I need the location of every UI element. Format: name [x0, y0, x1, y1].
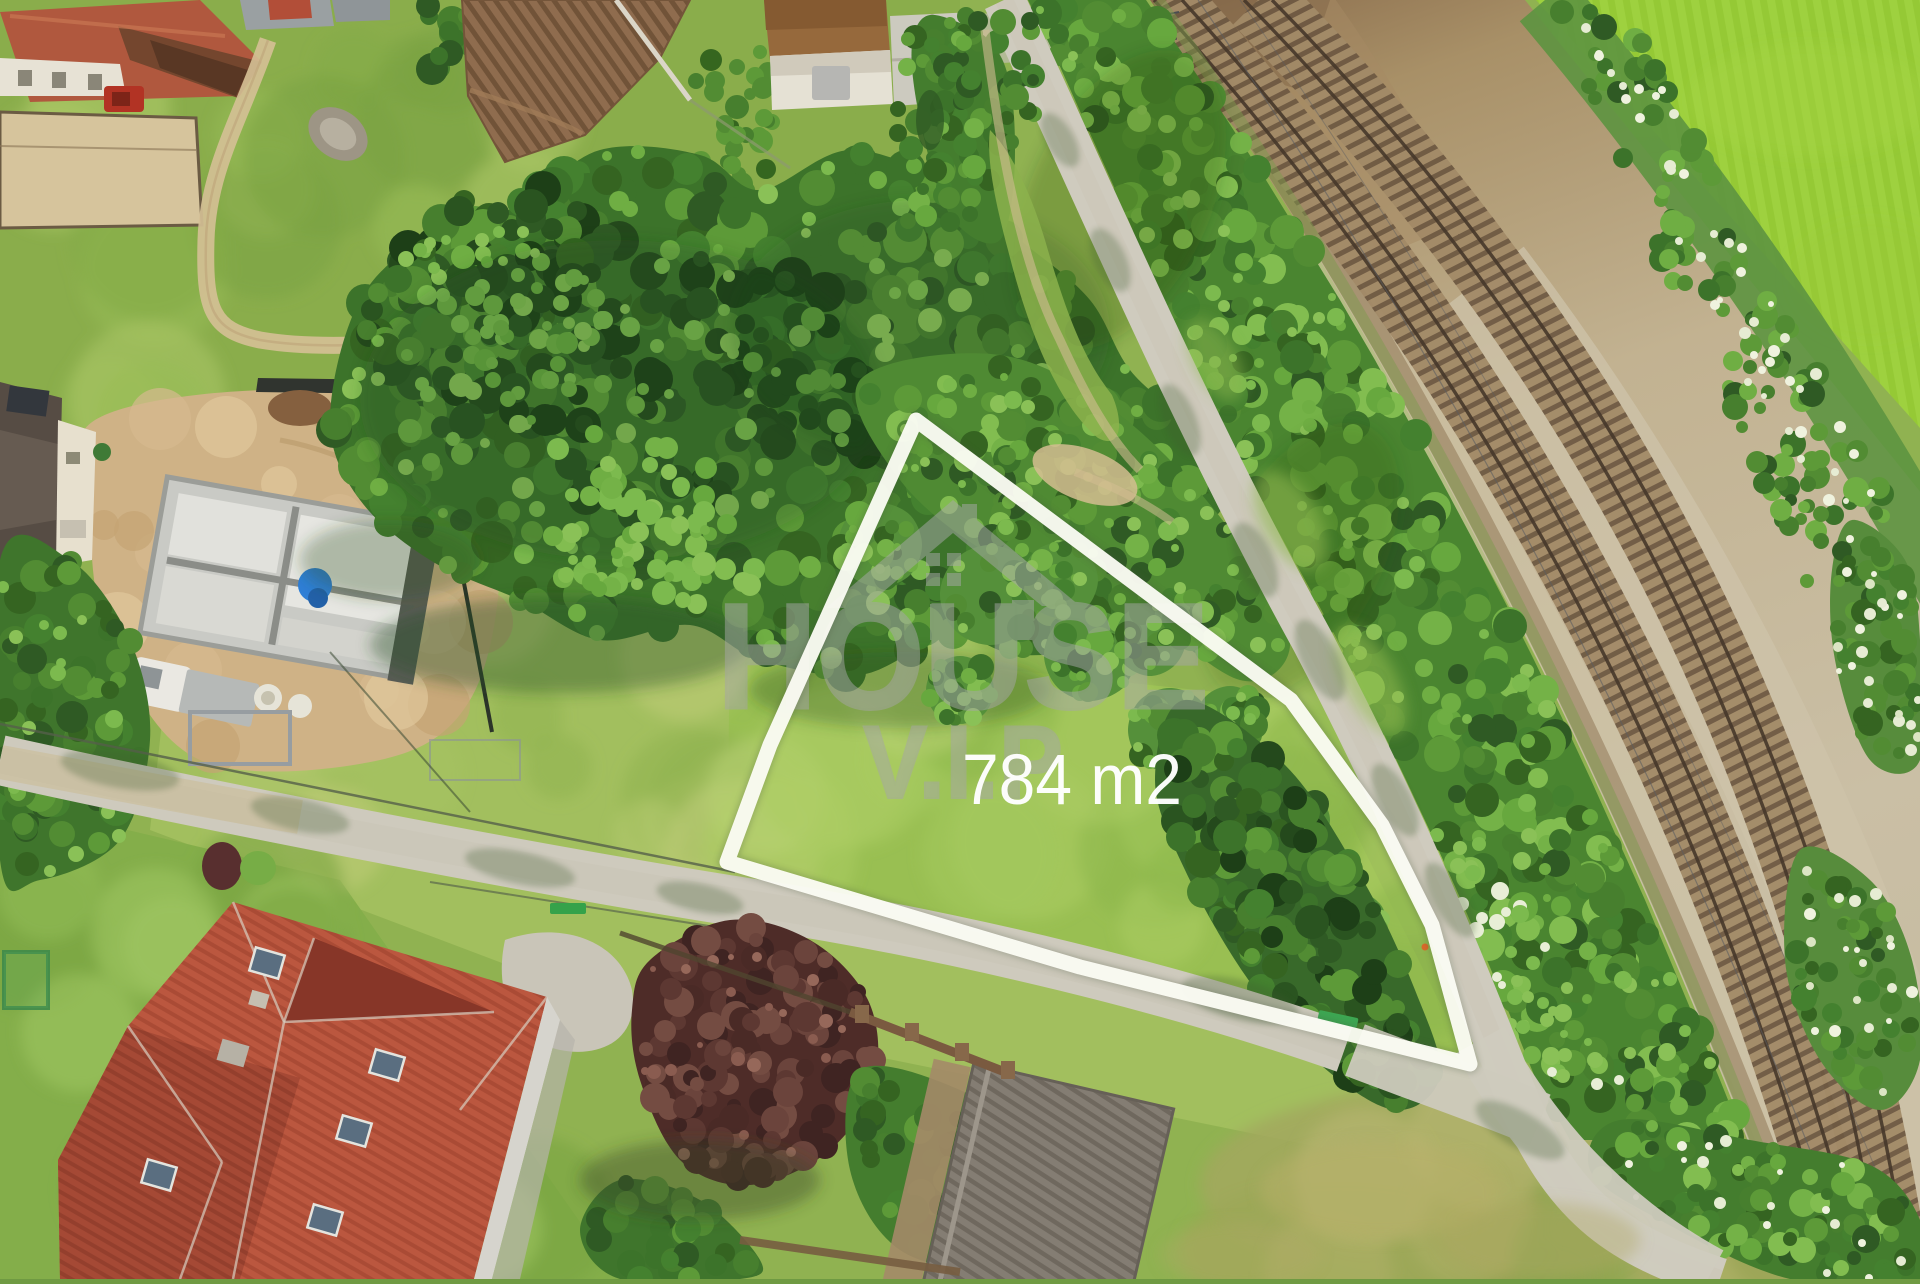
svg-text:784 m2: 784 m2 — [962, 741, 1182, 820]
